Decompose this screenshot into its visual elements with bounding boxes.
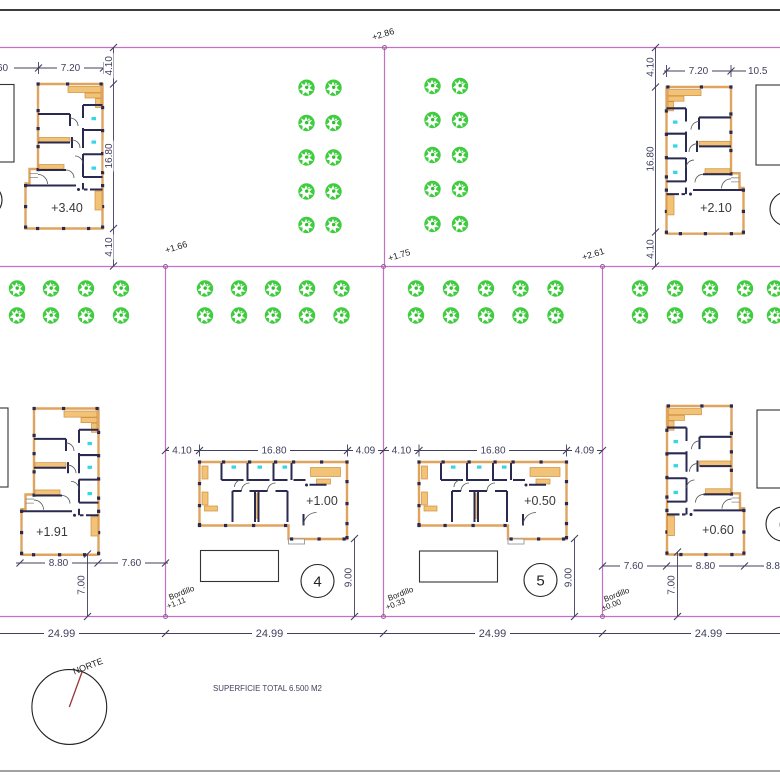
svg-text:7.60: 7.60 <box>122 558 142 569</box>
svg-text:4.10: 4.10 <box>646 239 657 259</box>
svg-text:7.00: 7.00 <box>77 575 88 595</box>
svg-text:+0.60: +0.60 <box>702 523 734 537</box>
svg-text:9.00: 9.00 <box>564 567 575 587</box>
svg-text:4.09: 4.09 <box>575 446 595 457</box>
svg-text:4: 4 <box>313 574 321 591</box>
svg-text:+3.40: +3.40 <box>51 201 83 215</box>
svg-text:7.60: 7.60 <box>624 561 644 572</box>
svg-text:16.80: 16.80 <box>261 446 286 457</box>
svg-text:NORTE: NORTE <box>72 656 105 677</box>
svg-text:4.10: 4.10 <box>392 446 412 457</box>
svg-text:9.00: 9.00 <box>344 567 355 587</box>
svg-text:24.99: 24.99 <box>48 628 76 640</box>
svg-text:+2.86: +2.86 <box>371 26 396 42</box>
svg-text:7.20: 7.20 <box>689 66 709 77</box>
svg-text:+2.10: +2.10 <box>700 201 732 215</box>
svg-text:+1.91: +1.91 <box>36 525 68 539</box>
svg-text:SUPERFICIE TOTAL 6.500 M2: SUPERFICIE TOTAL 6.500 M2 <box>213 684 322 693</box>
svg-text:+2.61: +2.61 <box>581 246 606 262</box>
svg-text:7.20: 7.20 <box>61 63 81 74</box>
svg-text:4.10: 4.10 <box>172 446 192 457</box>
svg-text:4.09: 4.09 <box>356 446 376 457</box>
svg-text:24.99: 24.99 <box>256 628 284 640</box>
svg-text:+0.50: +0.50 <box>524 494 556 508</box>
svg-text:8.80: 8.80 <box>696 561 716 572</box>
svg-text:4.10: 4.10 <box>104 56 115 76</box>
svg-text:8.80: 8.80 <box>49 558 69 569</box>
svg-text:4.10: 4.10 <box>646 57 657 77</box>
svg-text:5: 5 <box>536 573 544 590</box>
svg-text:24.99: 24.99 <box>479 628 507 640</box>
svg-text:16.80: 16.80 <box>480 446 505 457</box>
svg-text:8.8: 8.8 <box>766 561 780 572</box>
svg-text:16.80: 16.80 <box>646 146 657 171</box>
svg-text:16.80: 16.80 <box>104 143 115 168</box>
svg-text:24.99: 24.99 <box>695 628 723 640</box>
svg-text:4.10: 4.10 <box>104 237 115 257</box>
svg-text:+1.00: +1.00 <box>306 494 338 508</box>
svg-text:+1.75: +1.75 <box>387 247 412 263</box>
svg-text:60: 60 <box>0 63 9 74</box>
svg-text:7.00: 7.00 <box>667 575 678 595</box>
svg-text:+1.66: +1.66 <box>164 239 189 255</box>
svg-text:10.5: 10.5 <box>748 66 768 77</box>
